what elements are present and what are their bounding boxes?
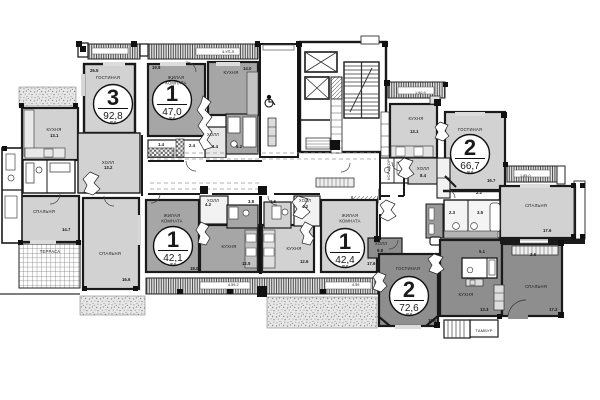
svg-text:14.7: 14.7 xyxy=(62,227,71,232)
svg-text:СПАЛЬНЯ: СПАЛЬНЯ xyxy=(33,209,55,214)
svg-text:СПАЛЬНЯ: СПАЛЬНЯ xyxy=(99,251,121,256)
svg-text:17.2: 17.2 xyxy=(549,307,558,312)
svg-text:13.2: 13.2 xyxy=(104,165,113,170)
svg-text:13.1: 13.1 xyxy=(410,129,419,134)
svg-text:9.8: 9.8 xyxy=(377,248,384,253)
svg-text:ХОЛЛ: ХОЛЛ xyxy=(207,132,219,137)
svg-text:ЖИЛАЯ: ЖИЛАЯ xyxy=(342,213,358,218)
svg-text:2.2: 2.2 xyxy=(476,190,483,195)
svg-text:18.0: 18.0 xyxy=(190,266,199,271)
svg-text:3: 3 xyxy=(107,85,119,110)
svg-text:8.4: 8.4 xyxy=(420,173,427,178)
svg-text:2: 2 xyxy=(464,135,476,160)
svg-text:КОРИДОР: КОРИДОР xyxy=(386,159,391,180)
svg-text:13.1: 13.1 xyxy=(50,133,59,138)
svg-text:2.6: 2.6 xyxy=(270,199,277,204)
svg-text:1.85.0: 1.85.0 xyxy=(520,174,531,178)
svg-text:кв.м: кв.м xyxy=(406,312,412,316)
svg-text:3.5: 3.5 xyxy=(477,210,484,215)
svg-text:ХОЛЛ: ХОЛЛ xyxy=(417,166,429,171)
svg-text:КУХНЯ: КУХНЯ xyxy=(459,292,474,297)
svg-text:СПАЛЬНЯ: СПАЛЬНЯ xyxy=(525,203,547,208)
svg-text:кв.м: кв.м xyxy=(110,120,116,124)
svg-text:1: 1 xyxy=(339,229,351,254)
svg-text:кв.м: кв.м xyxy=(170,262,176,266)
svg-text:4.4: 4.4 xyxy=(212,144,219,149)
svg-text:4.2: 4.2 xyxy=(302,204,309,209)
svg-text:14.0: 14.0 xyxy=(243,66,252,71)
svg-text:КУХНЯ: КУХНЯ xyxy=(287,246,302,251)
svg-text:3.6: 3.6 xyxy=(530,252,537,257)
svg-text:КУХНЯ: КУХНЯ xyxy=(47,127,62,132)
svg-text:5.2: 5.2 xyxy=(236,144,243,149)
svg-text:3.8: 3.8 xyxy=(248,199,255,204)
svg-text:КУХНЯ: КУХНЯ xyxy=(224,70,239,75)
svg-text:17.6: 17.6 xyxy=(367,261,376,266)
svg-text:ЖИЛАЯ: ЖИЛАЯ xyxy=(168,75,184,80)
svg-text:кв.м: кв.м xyxy=(342,264,348,268)
svg-text:2.4: 2.4 xyxy=(189,143,196,148)
svg-text:ГОСТИНАЯ: ГОСТИНАЯ xyxy=(396,266,420,271)
svg-text:4.2: 4.2 xyxy=(205,202,212,207)
svg-text:кв.м: кв.м xyxy=(467,170,473,174)
svg-text:ГОСТИНАЯ: ГОСТИНАЯ xyxy=(96,75,120,80)
svg-text:17.6: 17.6 xyxy=(543,228,552,233)
svg-text:16.7: 16.7 xyxy=(487,178,496,183)
svg-text:2.3: 2.3 xyxy=(449,210,456,215)
svg-text:СПАЛЬНЯ: СПАЛЬНЯ xyxy=(525,284,547,289)
svg-text:13.3: 13.3 xyxy=(480,307,489,312)
svg-text:5.1: 5.1 xyxy=(479,249,486,254)
svg-text:26.5: 26.5 xyxy=(90,68,99,73)
svg-text:КУХНЯ: КУХНЯ xyxy=(222,244,237,249)
svg-text:ТЕРРАСА: ТЕРРАСА xyxy=(40,249,60,254)
svg-text:ГОСТИНАЯ: ГОСТИНАЯ xyxy=(458,127,482,132)
svg-text:4.59.2: 4.59.2 xyxy=(228,283,239,287)
svg-text:КОМНАТА: КОМНАТА xyxy=(339,219,360,224)
svg-text:КОМНАТА: КОМНАТА xyxy=(165,81,186,86)
svg-text:16.6: 16.6 xyxy=(122,277,131,282)
svg-text:ХОЛЛ: ХОЛЛ xyxy=(299,198,311,203)
svg-text:2: 2 xyxy=(403,277,415,302)
svg-text:1.90.9: 1.90.9 xyxy=(415,91,426,95)
svg-text:ЖИЛАЯ: ЖИЛАЯ xyxy=(164,213,180,218)
svg-text:4.УП-Л: 4.УП-Л xyxy=(222,50,235,54)
svg-text:ТАМБУР: ТАМБУР xyxy=(475,328,492,333)
svg-text:12.6: 12.6 xyxy=(300,259,309,264)
svg-text:1: 1 xyxy=(167,227,179,252)
svg-text:1.4: 1.4 xyxy=(158,142,165,147)
svg-text:12.5: 12.5 xyxy=(242,261,251,266)
svg-text:19.8: 19.8 xyxy=(152,65,161,70)
svg-text:кв.м: кв.м xyxy=(169,116,175,120)
svg-text:КОМНАТА: КОМНАТА xyxy=(161,219,182,224)
svg-text:КУХНЯ: КУХНЯ xyxy=(409,116,424,121)
svg-text:4.59: 4.59 xyxy=(352,283,359,287)
